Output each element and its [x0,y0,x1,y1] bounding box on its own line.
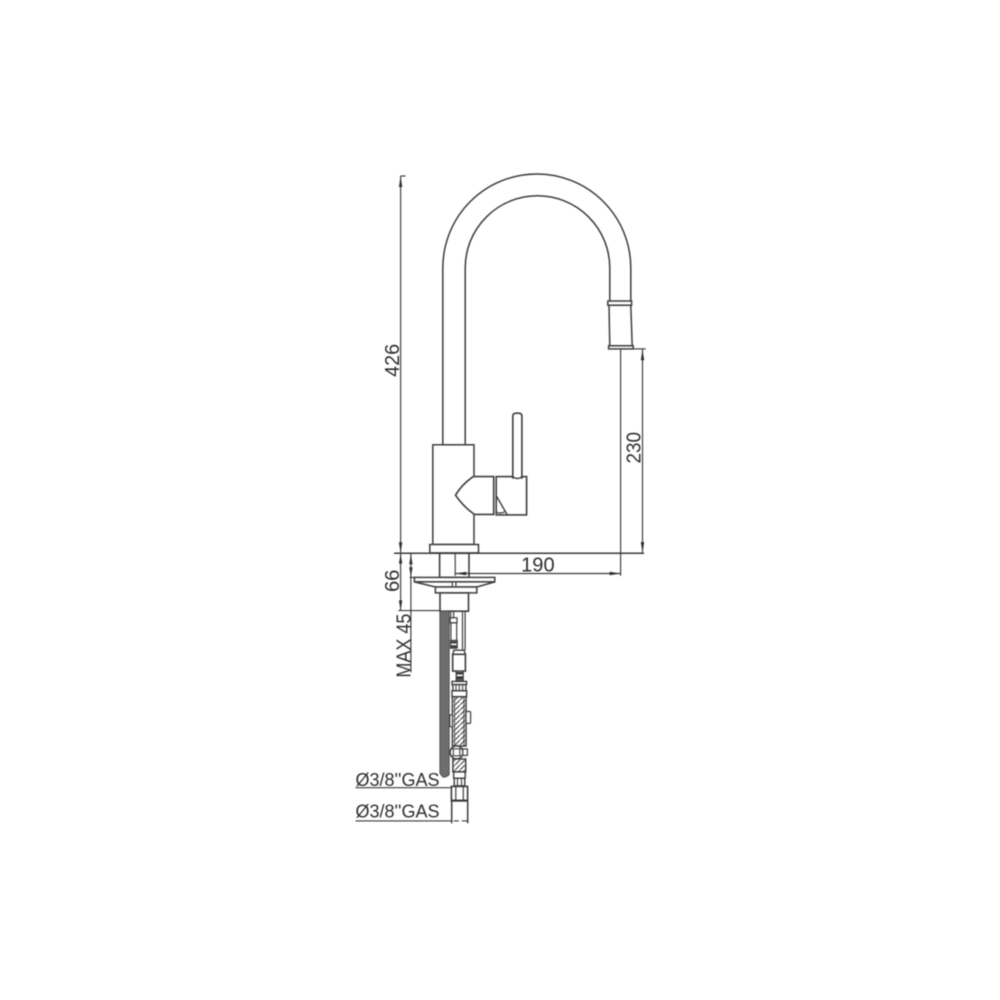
svg-text:190: 190 [521,554,555,577]
svg-text:66: 66 [381,570,404,593]
svg-text:MAX 45: MAX 45 [392,614,415,678]
svg-text:230: 230 [622,432,645,464]
svg-text:Ø3/8''GAS: Ø3/8''GAS [356,769,440,790]
svg-text:Ø3/8''GAS: Ø3/8''GAS [356,800,440,821]
svg-text:426: 426 [381,344,404,377]
